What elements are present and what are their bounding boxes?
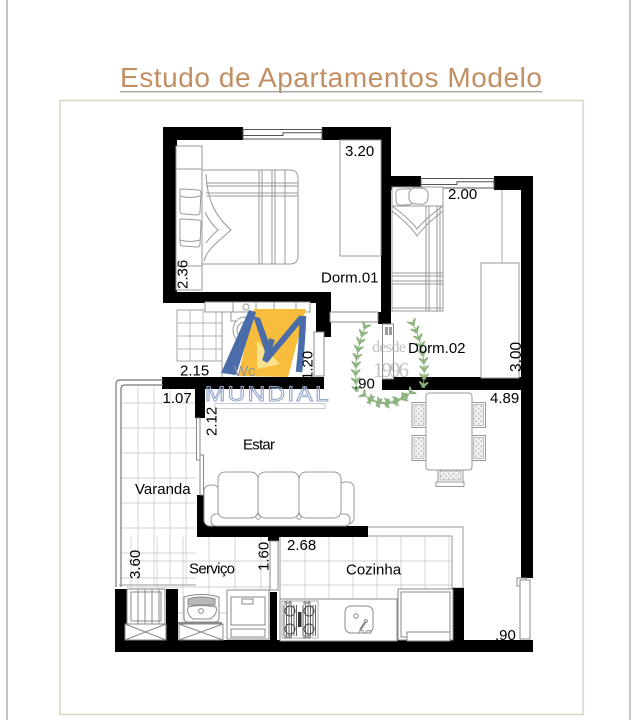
- svg-text:2.36: 2.36: [175, 260, 192, 289]
- svg-text:desde: desde: [372, 339, 406, 356]
- svg-text:Wc: Wc: [234, 363, 256, 380]
- svg-text:2.15: 2.15: [180, 363, 209, 380]
- svg-text:1.60: 1.60: [256, 542, 273, 571]
- svg-text:1.20: 1.20: [300, 351, 317, 380]
- svg-text:Estar: Estar: [243, 437, 275, 454]
- svg-text:1996: 1996: [373, 358, 409, 382]
- svg-text:3.60: 3.60: [127, 550, 144, 579]
- svg-text:.90: .90: [495, 627, 516, 644]
- svg-text:Dorm.01: Dorm.01: [321, 270, 379, 287]
- svg-text:Cozinha: Cozinha: [346, 562, 402, 579]
- svg-text:3.00: 3.00: [508, 341, 525, 372]
- svg-text:1.07: 1.07: [163, 390, 192, 407]
- svg-text:Estudo de Apartamentos Modelo: Estudo de Apartamentos Modelo: [120, 62, 542, 93]
- svg-text:4.89: 4.89: [490, 390, 519, 407]
- svg-text:2.12: 2.12: [204, 407, 221, 436]
- svg-text:2.68: 2.68: [287, 537, 316, 554]
- svg-text:2.00: 2.00: [448, 186, 477, 203]
- svg-text:Dorm.02: Dorm.02: [408, 340, 466, 357]
- svg-text:.90: .90: [354, 376, 375, 393]
- svg-text:Varanda: Varanda: [135, 481, 191, 498]
- svg-text:MUNDIAL: MUNDIAL: [205, 383, 331, 406]
- svg-text:Serviço: Serviço: [189, 561, 235, 578]
- svg-text:3.20: 3.20: [345, 143, 374, 160]
